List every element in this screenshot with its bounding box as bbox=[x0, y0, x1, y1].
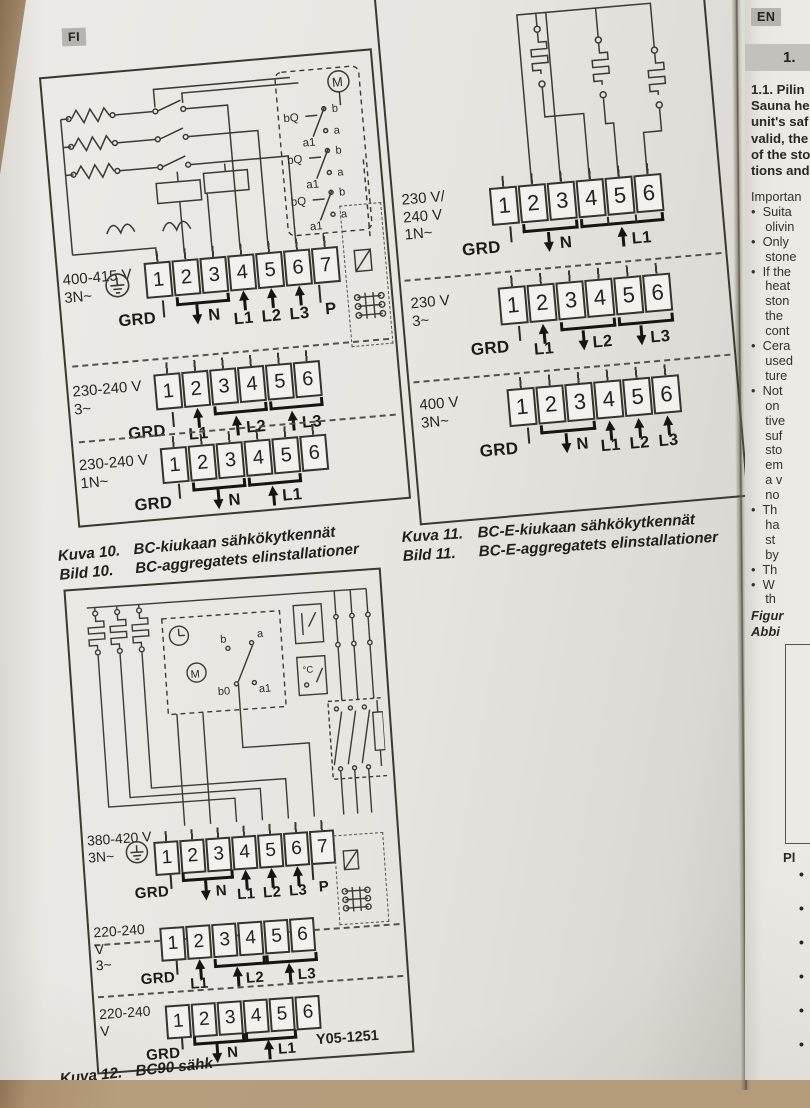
svg-text:M: M bbox=[190, 668, 200, 681]
grd-wire bbox=[172, 412, 175, 427]
figure-frame bbox=[785, 644, 810, 844]
connector-plug-icon bbox=[351, 288, 390, 323]
supply-voltage-label: 230-240 V3~ bbox=[72, 378, 144, 419]
terminal-cell: 4 bbox=[227, 253, 257, 291]
fig11-schematic-drawing bbox=[435, 0, 712, 193]
terminal-cell: 3 bbox=[199, 256, 229, 294]
terminal-cell: 2 bbox=[185, 924, 212, 960]
grd-label: GRD bbox=[134, 493, 173, 515]
page-finnish: FI bbox=[0, 0, 745, 1080]
text-line: st bbox=[751, 533, 802, 548]
terminal-cell: 3 bbox=[564, 382, 595, 422]
grd-wire bbox=[518, 326, 521, 341]
terminal-cell: 4 bbox=[593, 379, 624, 419]
control-circuit-dashed-box bbox=[339, 202, 393, 347]
caption-label: Bild 12. bbox=[61, 1081, 139, 1108]
terminal-cell: 1 bbox=[498, 285, 529, 325]
svg-text:a1: a1 bbox=[310, 220, 324, 233]
signal-lamp-icon bbox=[342, 848, 360, 873]
supply-voltage-label: 400 V3N~ bbox=[419, 394, 461, 433]
terminal-cell: 1 bbox=[160, 446, 190, 484]
grd-label: GRD bbox=[118, 309, 157, 331]
p-label: P bbox=[318, 878, 329, 896]
text-line: cont bbox=[751, 324, 802, 339]
section-header-bar: 1. bbox=[745, 44, 810, 71]
terminal-cell: 6 bbox=[633, 173, 664, 213]
text-line: the bbox=[751, 309, 802, 324]
n-label: N bbox=[576, 434, 590, 454]
bullet-dot: • bbox=[799, 968, 804, 984]
text-line: tive bbox=[751, 414, 802, 429]
terminal-cell: 4 bbox=[237, 365, 267, 403]
supply-voltage-label: 220-240 V3~ bbox=[93, 920, 156, 974]
svg-text:°C: °C bbox=[302, 664, 314, 676]
grd-label: GRD bbox=[470, 337, 510, 360]
terminal-cell: 3 bbox=[211, 922, 238, 958]
text-line: • Th bbox=[751, 563, 802, 578]
grd-wire bbox=[527, 427, 530, 443]
grd-wire bbox=[170, 875, 173, 889]
grd-wire bbox=[176, 961, 179, 975]
l1-label: L1 bbox=[600, 436, 621, 457]
arrow-up-icon bbox=[284, 962, 296, 983]
terminal-cell: 2 bbox=[191, 1002, 218, 1038]
p-wire bbox=[318, 285, 322, 303]
text-line: th bbox=[751, 592, 802, 607]
figure-caption-column: FigurAbbi bbox=[751, 608, 784, 640]
l2-label: L2 bbox=[592, 332, 613, 353]
terminal-cell: 4 bbox=[584, 278, 615, 318]
text-line: on bbox=[751, 399, 802, 414]
text-line: by bbox=[751, 548, 802, 563]
text-line: sto bbox=[751, 443, 802, 458]
terminal-cell: 5 bbox=[604, 176, 635, 216]
n-label: N bbox=[228, 490, 242, 510]
bullet-dot: • bbox=[799, 934, 804, 950]
list-heading: Pl bbox=[783, 850, 795, 866]
svg-text:a: a bbox=[257, 628, 265, 640]
arrow-down-icon bbox=[578, 330, 591, 351]
l3-label: L3 bbox=[650, 327, 671, 348]
l1-label: L1 bbox=[237, 885, 256, 903]
text-line: Importan bbox=[751, 190, 802, 205]
grd-wire bbox=[509, 226, 512, 242]
terminal-cell: 3 bbox=[555, 280, 586, 320]
svg-text:a: a bbox=[333, 124, 341, 137]
arrow-up-icon bbox=[238, 290, 251, 311]
terminal-cell: 3 bbox=[547, 181, 578, 221]
terminal-cell: 4 bbox=[231, 835, 258, 871]
terminal-cell: 5 bbox=[622, 377, 653, 417]
figure-12-wiring-diagram: M b a b0 a1 °C 380-420 V3N~ 1234567 GRD bbox=[63, 568, 414, 1075]
text-line: olivin bbox=[751, 220, 802, 235]
caption-label: Bild 11. bbox=[402, 542, 479, 566]
arrow-down-icon bbox=[543, 232, 556, 253]
figure-11-wiring-diagram: 230 V/240 V1N~ 123456 GRD N L1 230 V3~ bbox=[373, 0, 748, 525]
l1-label: L1 bbox=[282, 485, 303, 506]
svg-text:a1: a1 bbox=[302, 137, 316, 150]
terminal-cell: 2 bbox=[518, 183, 549, 223]
language-badge-fi: FI bbox=[62, 28, 87, 47]
text-line: ston bbox=[751, 294, 802, 309]
terminal-cell: 5 bbox=[255, 251, 285, 289]
supply-voltage-label: 230-240 V1N~ bbox=[78, 451, 150, 492]
caption-text bbox=[137, 1081, 139, 1100]
text-line: no bbox=[751, 488, 802, 503]
text-line: • If the bbox=[751, 265, 802, 280]
l2-label: L2 bbox=[262, 883, 281, 901]
terminal-cell: 2 bbox=[171, 258, 201, 296]
terminal-cell: 1 bbox=[144, 261, 174, 299]
bullet-dot: • bbox=[799, 900, 804, 916]
p-wire bbox=[311, 865, 314, 880]
terminal-cell: 2 bbox=[179, 838, 206, 874]
l2-label: L2 bbox=[629, 433, 650, 454]
arrow-down-icon bbox=[561, 433, 574, 454]
terminal-cell: 3 bbox=[205, 837, 232, 873]
text-line: tions and bbox=[751, 163, 810, 179]
text-line: heat bbox=[751, 279, 802, 294]
terminal-cell: 5 bbox=[257, 833, 284, 869]
terminal-cell: 6 bbox=[283, 248, 313, 286]
grd-wire bbox=[162, 300, 165, 317]
arrow-up-icon bbox=[266, 287, 279, 308]
svg-text:bQ: bQ bbox=[287, 154, 303, 167]
text-line: a v bbox=[751, 473, 802, 488]
supply-voltage-label: 230 V3~ bbox=[410, 292, 452, 331]
terminal-cell: 6 bbox=[651, 374, 682, 414]
terminal-cell: 7 bbox=[311, 246, 341, 284]
terminal-cell: 5 bbox=[268, 997, 295, 1033]
arrow-up-icon bbox=[294, 285, 307, 306]
text-line: ha bbox=[751, 518, 802, 533]
terminal-cell: 5 bbox=[271, 436, 301, 474]
text-line: suf bbox=[751, 429, 802, 444]
bullet-dot: • bbox=[799, 866, 804, 882]
fig12-schematic-drawing: M b a b0 a1 °C bbox=[72, 578, 390, 832]
text-line: 1.1. Pilin bbox=[751, 82, 810, 98]
l1-label: L1 bbox=[233, 309, 254, 330]
terminal-cell: 5 bbox=[263, 919, 290, 955]
text-line: Sauna he bbox=[751, 98, 810, 114]
earth-ground-icon bbox=[123, 838, 151, 866]
fig10-schematic-drawing: M bQ b a a1 bQ b a a1 bQ b a a1 bbox=[50, 59, 378, 264]
svg-text:b: b bbox=[339, 186, 346, 198]
n-label: N bbox=[208, 306, 222, 326]
caption-line: Abbi bbox=[751, 624, 784, 640]
text-line: unit's saf bbox=[751, 114, 810, 130]
text-line: used bbox=[751, 354, 802, 369]
bullet-list: •••••• bbox=[799, 866, 804, 1052]
l3-label: L3 bbox=[288, 881, 307, 899]
body-text-column: Importan• Suita olivin• Only stone• If t… bbox=[751, 190, 802, 607]
svg-text:bQ: bQ bbox=[290, 196, 306, 209]
terminal-cell: 7 bbox=[309, 829, 336, 865]
grd-wire bbox=[178, 484, 181, 499]
intro-text-column: 1.1. PilinSauna heunit's safvalid, theof… bbox=[751, 82, 810, 179]
terminal-cell: 6 bbox=[294, 995, 321, 1031]
terminal-cell: 1 bbox=[489, 186, 520, 226]
l1-label: L1 bbox=[631, 228, 652, 249]
terminal-cell: 5 bbox=[265, 362, 295, 400]
supply-voltage-label: 230 V/240 V1N~ bbox=[401, 188, 449, 245]
l3-label: L3 bbox=[658, 431, 679, 452]
text-line: • Not bbox=[751, 384, 802, 399]
svg-text:bQ: bQ bbox=[283, 112, 299, 125]
terminal-cell: 3 bbox=[217, 1000, 244, 1036]
terminal-cell: 6 bbox=[299, 434, 329, 472]
terminal-cell: 1 bbox=[165, 1004, 192, 1040]
text-line: • Only bbox=[751, 235, 802, 250]
figure-10-wiring-diagram: M bQ b a a1 bQ b a a1 bQ b a a1 400-415 … bbox=[39, 48, 411, 527]
terminal-cell: 4 bbox=[243, 439, 273, 477]
arrow-down-icon bbox=[200, 880, 212, 901]
terminal-cell: 4 bbox=[576, 178, 607, 218]
terminal-cell: 2 bbox=[188, 444, 218, 482]
svg-text:M: M bbox=[331, 74, 343, 90]
grd-label: GRD bbox=[140, 969, 175, 988]
page-english-edge: EN 1. 1.1. PilinSauna heunit's safvalid,… bbox=[745, 0, 810, 1080]
earth-ground-icon bbox=[102, 270, 132, 300]
arrow-up-icon bbox=[232, 966, 244, 987]
supply-voltage-label: 220-240 V bbox=[99, 1002, 161, 1039]
connector-plug-icon bbox=[339, 883, 375, 915]
svg-text:b0: b0 bbox=[218, 685, 231, 698]
terminal-cell: 2 bbox=[535, 384, 566, 424]
svg-text:a1: a1 bbox=[258, 682, 271, 695]
text-line: em bbox=[751, 458, 802, 473]
terminal-cell: 2 bbox=[181, 370, 211, 408]
terminal-cell: 4 bbox=[243, 998, 270, 1034]
terminal-cell: 3 bbox=[209, 367, 239, 405]
svg-text:b: b bbox=[220, 633, 227, 645]
text-line: • Suita bbox=[751, 205, 802, 220]
terminal-cell: 6 bbox=[642, 273, 673, 313]
grd-label: GRD bbox=[479, 439, 519, 462]
svg-text:b: b bbox=[335, 144, 342, 156]
arrow-up-icon bbox=[617, 226, 630, 247]
caption-label: Kuva 12. bbox=[59, 1062, 137, 1089]
terminal-cell: 1 bbox=[159, 926, 186, 962]
text-line: • Cera bbox=[751, 339, 802, 354]
l2-label: L2 bbox=[261, 306, 282, 327]
arrow-down-icon bbox=[191, 304, 204, 325]
svg-text:a1: a1 bbox=[306, 178, 320, 191]
svg-text:b: b bbox=[331, 102, 338, 114]
text-line: stone bbox=[751, 250, 802, 265]
terminal-cell: 1 bbox=[153, 840, 180, 876]
l1-label: L1 bbox=[533, 339, 554, 360]
bullet-dot: • bbox=[799, 1002, 804, 1018]
bullet-dot: • bbox=[799, 1036, 804, 1052]
p-label: P bbox=[324, 299, 337, 319]
l3-label: L3 bbox=[289, 304, 310, 325]
text-line: • W bbox=[751, 578, 802, 593]
language-badge-en: EN bbox=[751, 8, 781, 26]
terminal-cell: 2 bbox=[526, 283, 557, 323]
text-line: ture bbox=[751, 369, 802, 384]
terminal-cell: 6 bbox=[283, 831, 310, 867]
text-line: • Th bbox=[751, 503, 802, 518]
svg-text:a: a bbox=[337, 166, 345, 179]
grd-label: GRD bbox=[134, 883, 169, 902]
n-label: N bbox=[559, 233, 573, 253]
terminal-cell: 6 bbox=[289, 917, 316, 953]
arrow-down-icon bbox=[213, 489, 226, 510]
terminal-cell: 5 bbox=[613, 275, 644, 315]
terminal-cell: 1 bbox=[153, 372, 183, 410]
terminal-cell: 4 bbox=[237, 921, 264, 957]
caption-line: Figur bbox=[751, 608, 784, 624]
terminal-cell: 6 bbox=[293, 360, 323, 398]
text-line: valid, the bbox=[751, 131, 810, 147]
text-line: of the sto bbox=[751, 147, 810, 163]
n-label: N bbox=[215, 882, 227, 900]
terminal-cell: 3 bbox=[216, 441, 246, 479]
arrow-down-icon bbox=[635, 325, 648, 346]
signal-lamp-icon bbox=[353, 247, 373, 274]
grd-label: GRD bbox=[461, 237, 501, 260]
arrow-up-icon bbox=[267, 485, 280, 506]
terminal-cell: 1 bbox=[506, 387, 537, 427]
